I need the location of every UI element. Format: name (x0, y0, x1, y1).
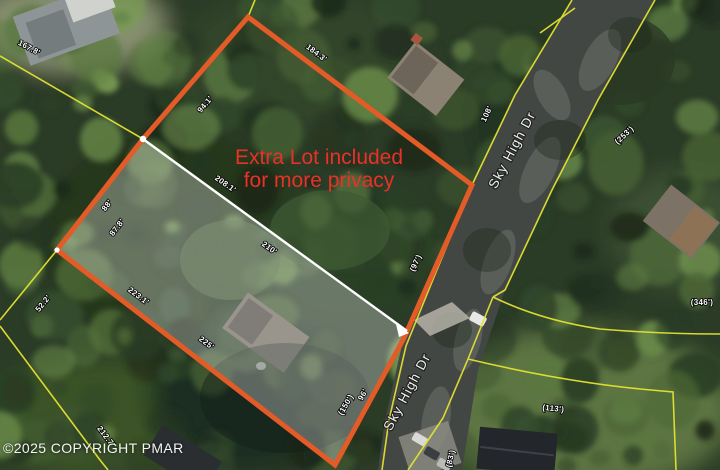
aerial-photo-canvas: Sky High DrSky High Dr 167.8'184.3'94.1'… (0, 0, 720, 470)
aerial-map: Sky High DrSky High Dr 167.8'184.3'94.1'… (0, 0, 720, 470)
annotation-line2: for more privacy (193, 169, 445, 192)
extra-lot-annotation: Extra Lot included for more privacy (193, 146, 445, 192)
copyright-label: ©2025 COPYRIGHT PMAR (3, 440, 184, 456)
dimension-label: (346') (691, 298, 713, 307)
building-roof (476, 427, 557, 470)
lot-corner-marker (140, 136, 146, 142)
annotation-line1: Extra Lot included (193, 146, 445, 169)
lot-corner-marker (54, 247, 59, 252)
